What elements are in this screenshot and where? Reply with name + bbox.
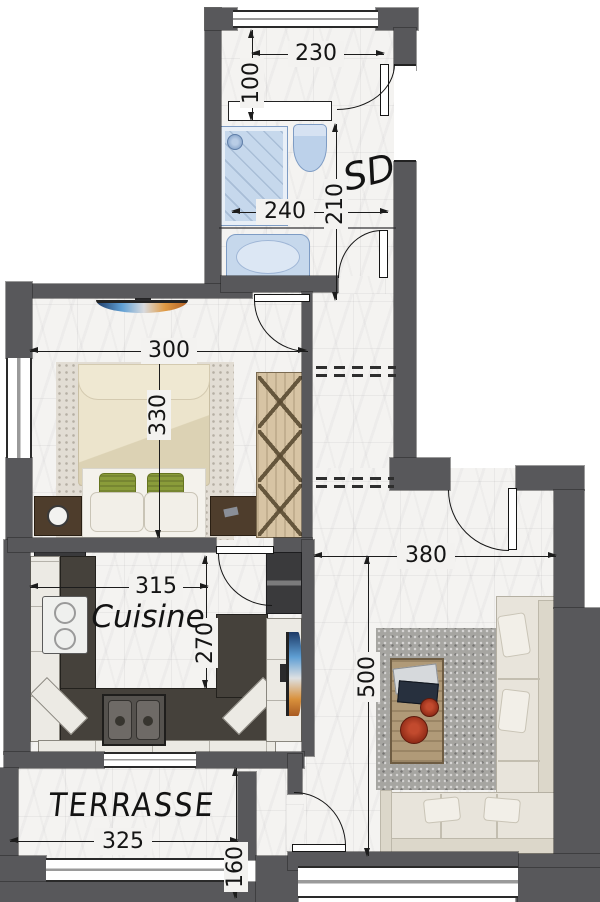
wall-terrace-step	[0, 856, 46, 882]
wall-kitchen-living-divider	[302, 540, 314, 756]
living-room-window	[298, 866, 518, 898]
sofa-pillow-4	[483, 796, 521, 823]
wall-bath-south	[221, 276, 338, 292]
decor-bowl-small	[420, 698, 439, 717]
dim-value: 315	[135, 576, 177, 598]
sink-drain-right	[143, 716, 153, 726]
dim-value: 500	[356, 652, 380, 702]
wall-lobby-living-upper	[288, 754, 302, 794]
hall-beam-dash-4	[316, 485, 394, 488]
wall-top-right-segment	[376, 8, 418, 30]
sofa-armrest-left	[380, 790, 392, 856]
room-name: TERRASSE	[47, 786, 217, 824]
dim-label-living-width: 380	[397, 543, 455, 569]
hall-beam-dash-2	[316, 374, 396, 377]
entry-window	[233, 10, 378, 28]
dim-label-living-length: 500	[355, 648, 381, 706]
room-label-kitchen: Cuisine	[92, 596, 204, 638]
entry-door-opening	[394, 64, 416, 162]
bathtub-basin	[236, 240, 300, 274]
wardrobe-door-brace-3	[258, 484, 302, 536]
shower-head	[227, 134, 243, 150]
dim-value: 240	[264, 201, 306, 223]
dim-value: 330	[147, 390, 171, 440]
kitchen-terrace-window	[104, 752, 196, 768]
stove-burner-1	[54, 602, 76, 624]
dim-label-terrace-depth: 160	[223, 840, 249, 894]
dim-value: 230	[295, 43, 337, 65]
bed-blanket-fold	[78, 364, 210, 400]
dim-value: 300	[148, 340, 190, 362]
living-door-leaf	[508, 488, 517, 550]
wall-kitchen-south-left	[4, 752, 104, 768]
dim-value: 160	[224, 842, 248, 892]
dim-label-sd-width: 240	[256, 199, 314, 225]
dim-value: 380	[405, 545, 447, 567]
wall-below-window-right	[518, 868, 600, 902]
wall-exterior-left-mid	[6, 458, 32, 540]
wall-exterior-left-kitchen	[4, 540, 30, 754]
wall-living-right-lower	[554, 608, 600, 858]
dim-line-living-length	[368, 556, 369, 856]
bath-door-threshold	[338, 276, 394, 294]
dim-label-bedroom-length: 330	[146, 386, 172, 444]
hall-beam-dash-3	[316, 477, 394, 480]
sofa-right-seam-2	[498, 760, 540, 762]
dim-line-bedroom-length	[159, 351, 160, 538]
nightstand-right	[210, 496, 258, 536]
room-label-terrace: TERRASSE	[45, 779, 218, 831]
dim-label-entry-width: 230	[288, 41, 344, 67]
decor-bowl-large	[400, 716, 428, 744]
hallway-floor	[306, 294, 396, 490]
dim-label-terrace-width: 325	[94, 828, 152, 855]
wall-bedroom-top	[8, 284, 252, 298]
wall-top-column-left	[205, 8, 221, 296]
stove-burner-2	[54, 628, 76, 650]
white-pillow-left	[90, 492, 144, 532]
terrace-railing	[46, 858, 238, 882]
sofa-pillow-3	[423, 796, 461, 824]
dim-value: 325	[102, 831, 144, 853]
wardrobe-door-brace-1	[258, 376, 302, 428]
bedroom-window	[6, 358, 32, 458]
dim-value: 100	[240, 58, 264, 108]
wall-kitchen-top-left	[8, 538, 216, 552]
sink-drain-left	[115, 716, 125, 726]
wardrobe-door-brace-2	[258, 430, 302, 482]
room-name: Cuisine	[91, 599, 204, 635]
kitchen-door-leaf	[216, 546, 274, 554]
wall-right-corridor	[394, 162, 416, 470]
partition-sd-bath	[219, 227, 396, 229]
sofa-pillow-2	[498, 688, 531, 733]
floor-plan: 230 100 240 210 300 330 315 270 380 500 …	[0, 0, 600, 902]
living-room-tv	[286, 632, 302, 716]
nightstand-clock	[47, 505, 69, 527]
dim-label-entry-depth: 100	[239, 56, 265, 110]
hall-beam-dash-1	[316, 366, 396, 369]
wall-living-top-right	[516, 466, 584, 490]
room-name: SD	[339, 145, 400, 199]
dim-label-bedroom-width: 300	[141, 338, 197, 364]
wall-living-right-upper	[554, 490, 584, 608]
white-pillow-right	[144, 492, 198, 532]
sofa-right-seam-1	[498, 678, 540, 680]
wall-living-top-left	[390, 458, 450, 490]
